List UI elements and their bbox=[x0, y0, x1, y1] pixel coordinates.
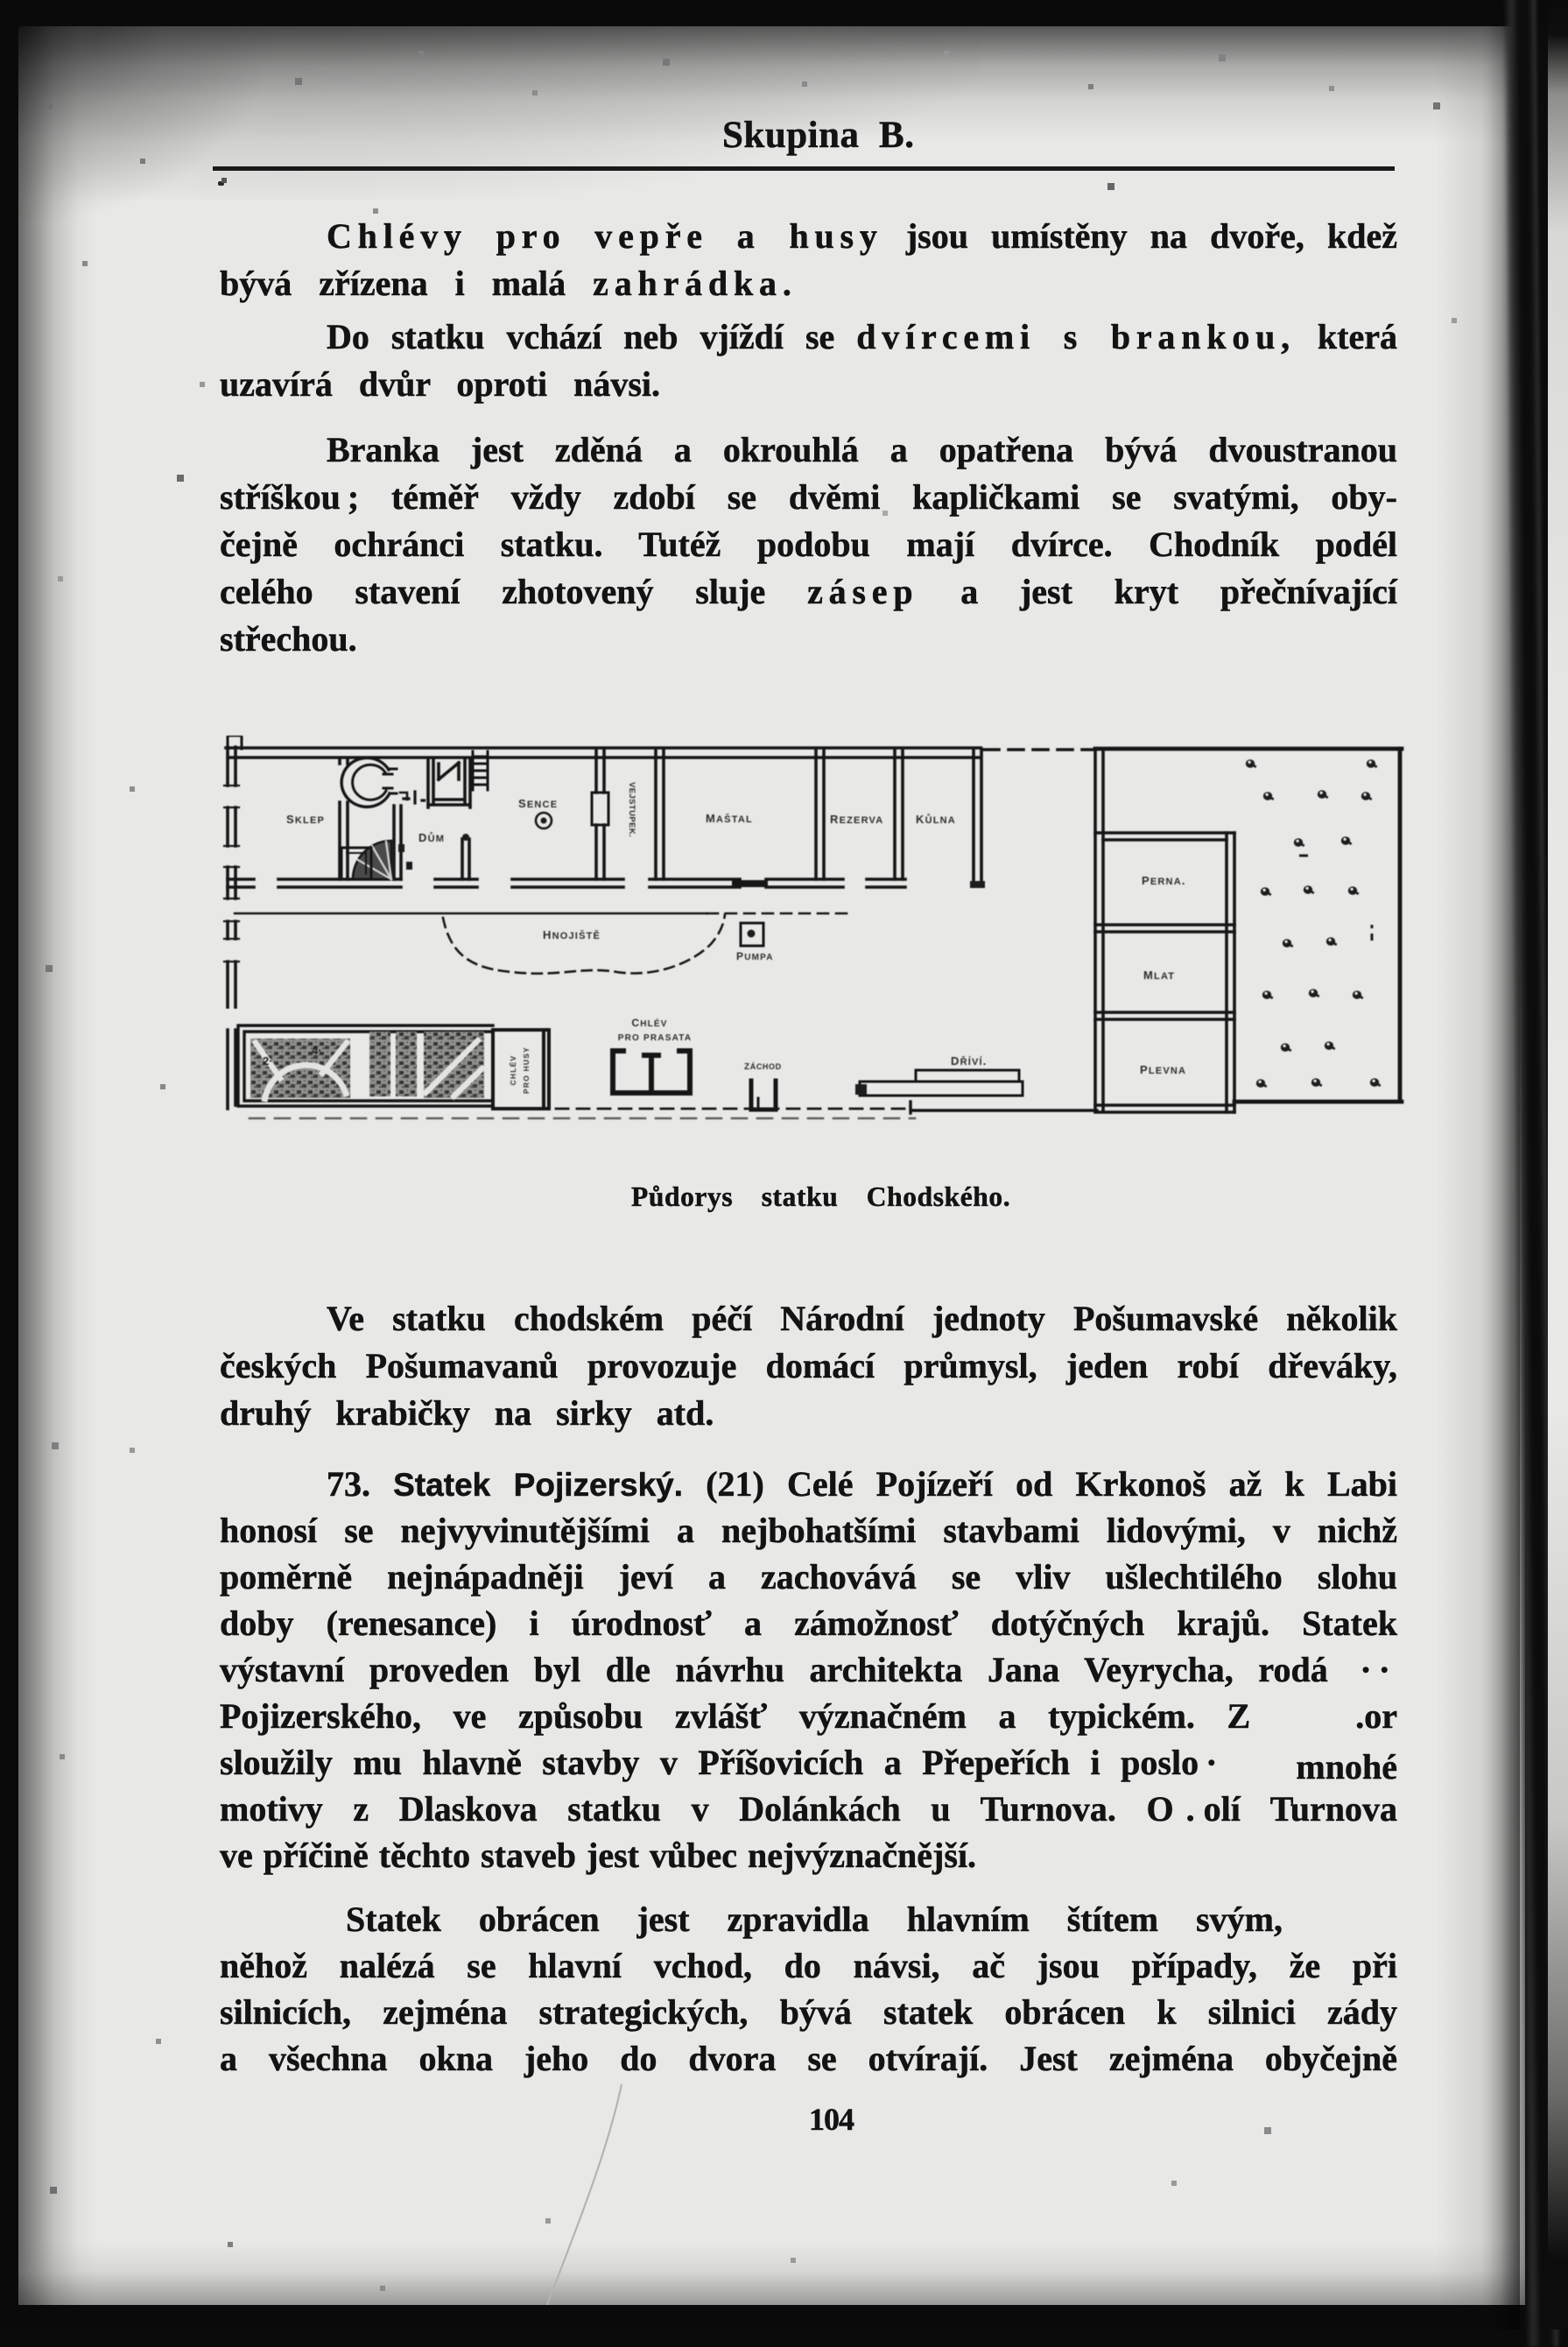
svg-text:PUMPA: PUMPA bbox=[736, 950, 774, 962]
svg-text:PRO HUSY: PRO HUSY bbox=[522, 1047, 531, 1094]
svg-text:PERNA.: PERNA. bbox=[1142, 874, 1186, 887]
svg-text:SENCE: SENCE bbox=[518, 797, 558, 810]
svg-text:REZERVA: REZERVA bbox=[830, 813, 883, 826]
svg-text:MLAT: MLAT bbox=[1143, 969, 1175, 982]
svg-text:SKLEP: SKLEP bbox=[286, 813, 325, 826]
svg-text:VEJSTUPEK.: VEJSTUPEK. bbox=[627, 782, 636, 837]
svg-text:HNOJIŠTĚ: HNOJIŠTĚ bbox=[543, 928, 601, 941]
svg-text:4·: 4· bbox=[312, 1044, 322, 1057]
svg-text:KŮLNA: KŮLNA bbox=[916, 813, 956, 826]
svg-text:DŘÍVÍ.: DŘÍVÍ. bbox=[951, 1054, 988, 1068]
svg-text:2·: 2· bbox=[263, 1054, 273, 1068]
svg-text:PLEVNA: PLEVNA bbox=[1140, 1063, 1186, 1076]
svg-text:CHLÉV: CHLÉV bbox=[631, 1017, 667, 1029]
svg-text:MAŠTAL: MAŠTAL bbox=[706, 812, 753, 825]
svg-text:DŮM: DŮM bbox=[418, 831, 445, 844]
svg-text:ZÁCHOD: ZÁCHOD bbox=[744, 1062, 782, 1072]
svg-text:CHLÉV: CHLÉV bbox=[509, 1055, 517, 1086]
svg-text:PRO PRASATA: PRO PRASATA bbox=[618, 1033, 693, 1043]
